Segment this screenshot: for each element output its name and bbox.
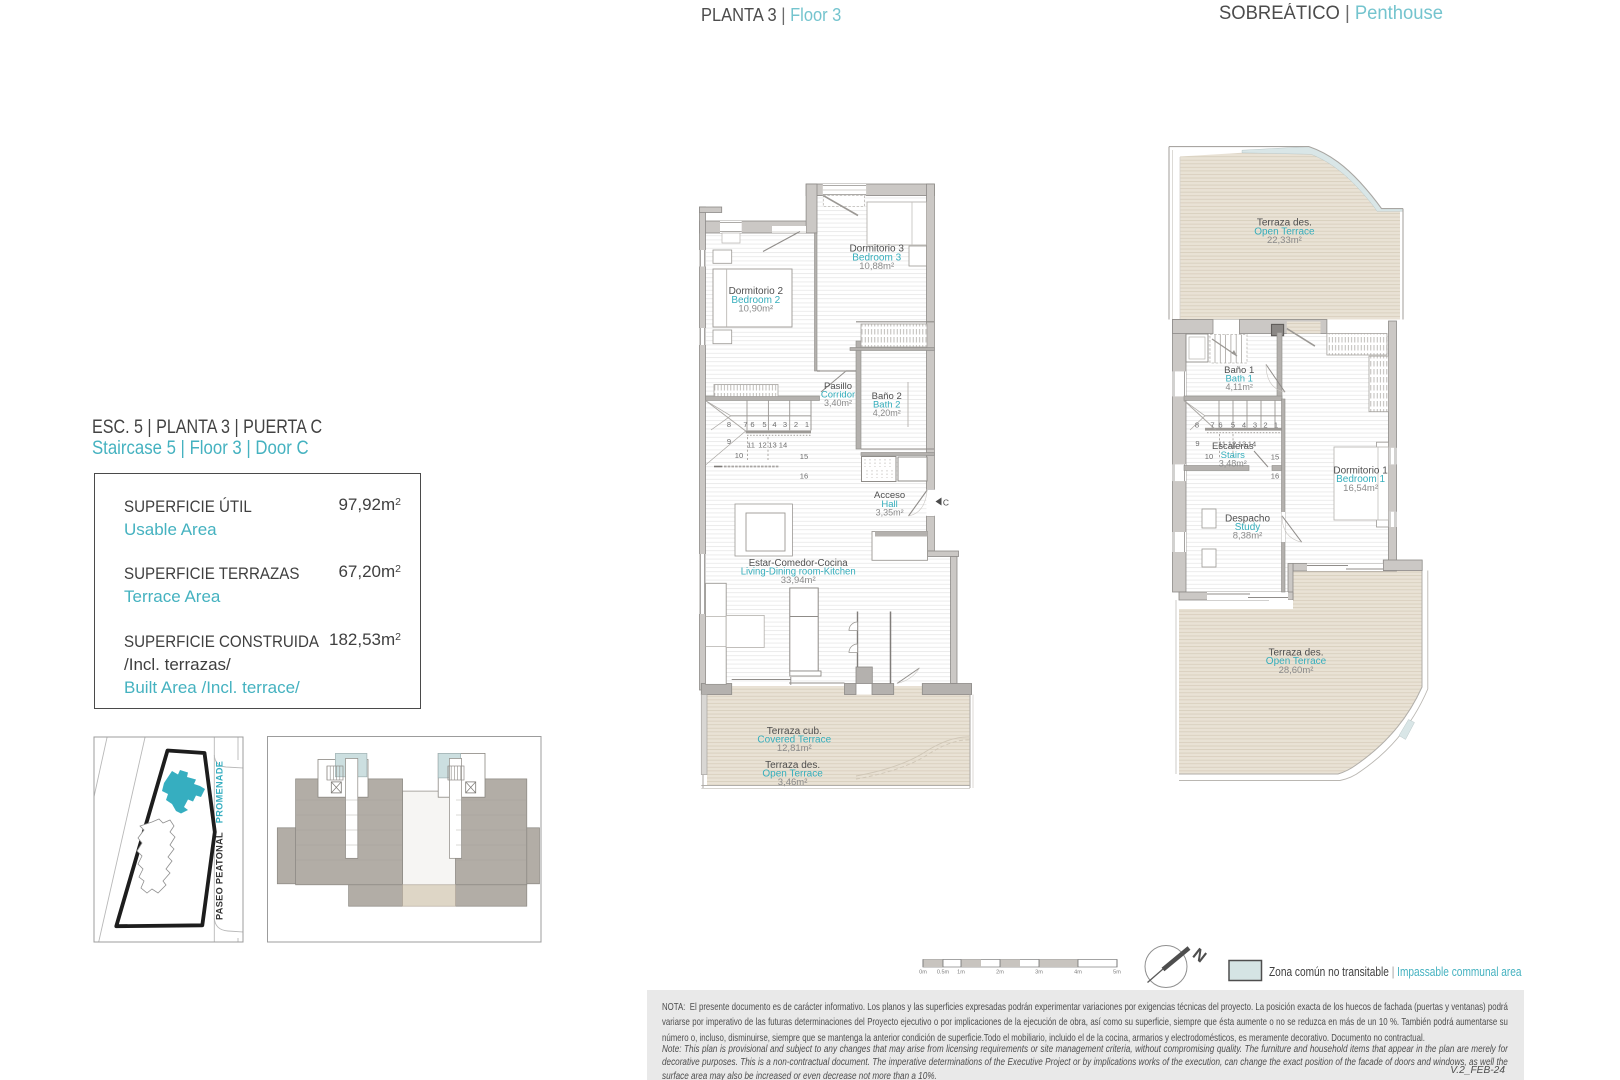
svg-text:1m: 1m <box>957 970 965 976</box>
svg-text:5: 5 <box>762 420 766 429</box>
svg-text:16: 16 <box>1271 472 1279 481</box>
svg-text:4: 4 <box>772 420 776 429</box>
svg-text:4,11m²: 4,11m² <box>1226 382 1253 392</box>
svg-text:33,94m²: 33,94m² <box>781 575 816 586</box>
svg-text:10: 10 <box>735 451 743 460</box>
svg-text:8: 8 <box>1195 421 1199 430</box>
svg-text:16,54m²: 16,54m² <box>1343 483 1378 494</box>
svg-text:10,90m²: 10,90m² <box>738 303 773 314</box>
svg-text:13: 13 <box>768 441 776 450</box>
svg-text:11: 11 <box>747 441 755 450</box>
svg-text:6: 6 <box>750 420 754 429</box>
svg-text:15: 15 <box>800 452 808 461</box>
svg-text:5m: 5m <box>1113 970 1121 976</box>
svg-text:0m: 0m <box>919 970 927 976</box>
svg-text:7: 7 <box>743 420 747 429</box>
svg-text:2: 2 <box>1263 421 1267 430</box>
svg-text:3: 3 <box>1253 421 1257 430</box>
svg-text:28,60m²: 28,60m² <box>1279 665 1314 676</box>
svg-text:3,35m²: 3,35m² <box>876 507 904 517</box>
svg-text:C: C <box>943 498 949 508</box>
svg-text:4: 4 <box>1242 421 1246 430</box>
svg-text:12,81m²: 12,81m² <box>777 743 812 754</box>
svg-text:9: 9 <box>1195 439 1199 448</box>
svg-text:3,48m²: 3,48m² <box>1219 458 1247 468</box>
svg-text:3: 3 <box>783 420 787 429</box>
svg-text:0.5m: 0.5m <box>937 970 950 976</box>
svg-text:2m: 2m <box>996 970 1004 976</box>
svg-text:22,33m²: 22,33m² <box>1267 235 1302 246</box>
svg-text:10,88m²: 10,88m² <box>859 261 894 272</box>
svg-text:2: 2 <box>794 420 798 429</box>
svg-text:8,38m²: 8,38m² <box>1233 531 1263 542</box>
svg-text:4,20m²: 4,20m² <box>873 408 901 418</box>
svg-text:8: 8 <box>727 420 731 429</box>
svg-text:N: N <box>1189 945 1209 967</box>
svg-text:3,40m²: 3,40m² <box>824 398 852 408</box>
svg-text:7: 7 <box>1210 421 1214 430</box>
svg-text:6: 6 <box>1218 421 1222 430</box>
svg-text:1: 1 <box>805 420 809 429</box>
svg-text:9: 9 <box>727 437 731 446</box>
svg-text:15: 15 <box>1271 453 1279 462</box>
svg-text:10: 10 <box>1205 452 1213 461</box>
svg-text:16: 16 <box>800 472 808 481</box>
svg-text:PASEO PEATONAL: PASEO PEATONAL <box>215 832 225 920</box>
svg-text:5: 5 <box>1231 421 1235 430</box>
svg-text:3m: 3m <box>1035 970 1043 976</box>
svg-text:14: 14 <box>779 441 787 450</box>
svg-text:PROMENADE: PROMENADE <box>215 761 225 823</box>
svg-text:12: 12 <box>758 441 766 450</box>
svg-text:1: 1 <box>1274 421 1278 430</box>
svg-text:3,46m²: 3,46m² <box>778 777 808 788</box>
svg-text:4m: 4m <box>1074 970 1082 976</box>
